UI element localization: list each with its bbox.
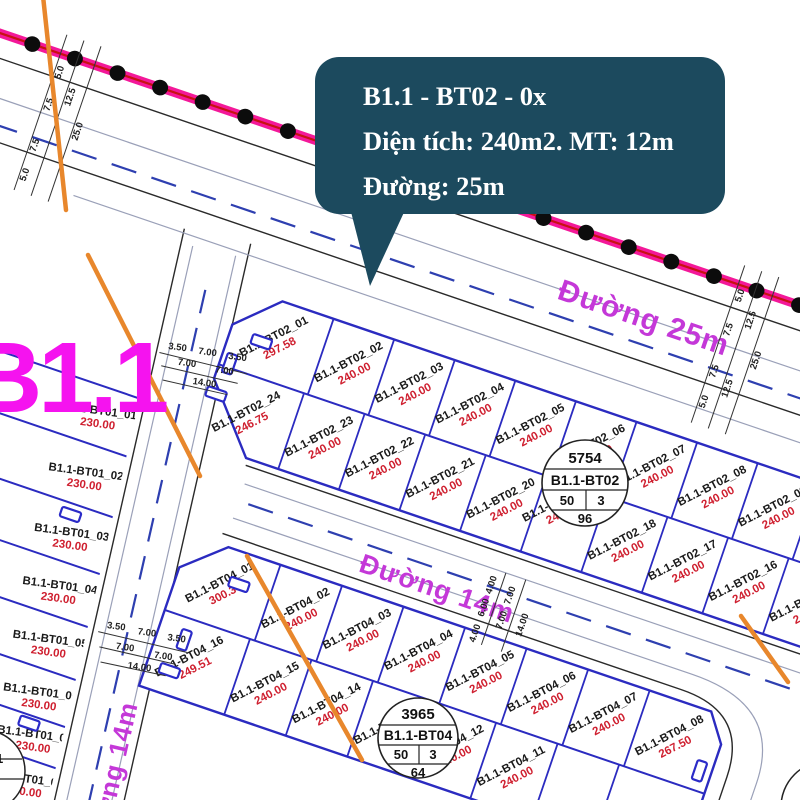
callout-tail	[350, 208, 406, 286]
seal-value: 50	[394, 747, 408, 762]
zone-title: B1.1	[0, 322, 167, 434]
info-callout[interactable]: B1.1 - BT02 - 0x Diện tích: 240m2. MT: 1…	[315, 57, 725, 214]
seal-code: B1.1-BT02	[551, 472, 620, 488]
dim-label: 7.5	[707, 363, 722, 380]
road-label-25m: Đường 25m	[554, 274, 734, 363]
dim-label: 7.5	[721, 321, 736, 338]
seal-partial-corner	[781, 761, 800, 800]
seal-value: 3	[429, 747, 436, 762]
plot-label[interactable]: B1.1-BT01_03230.00	[32, 522, 110, 557]
plot-label[interactable]: B1.1-BT01_06230.00	[1, 681, 79, 716]
seal-value: 01	[0, 751, 3, 766]
callout-road-width: Đường: 25m	[363, 164, 715, 209]
seal-value: 3	[597, 493, 604, 508]
dim-label: 5.0	[18, 167, 33, 183]
dim-label: 12.5	[719, 377, 736, 399]
seal-number: 3965	[401, 706, 434, 723]
seal-value: 50	[560, 493, 574, 508]
dim-label: 5.0	[697, 394, 712, 410]
seal-number: 5754	[568, 450, 602, 467]
seal-value: 64	[411, 765, 426, 780]
cadastral-map-screen: B1.1-BT01_01230.00 B1.1-BT01_02230.00 B1…	[0, 0, 800, 800]
plot-label[interactable]: B1.1-BT01_02230.00	[46, 461, 124, 496]
plot-label[interactable]: B1.1-BT01_05230.00	[10, 629, 89, 664]
seal-code: B1.1-BT04	[384, 727, 453, 743]
seal-value: 96	[578, 511, 592, 526]
plot-label[interactable]: B1.1-BT01_04230.00	[20, 575, 99, 610]
dim-label: 14.00	[513, 612, 531, 638]
dim-label: 12.5	[62, 86, 79, 108]
dim-label: 5.0	[53, 64, 68, 80]
dim-label: 25.0	[70, 121, 86, 142]
seal-bt02[interactable]: 5754 B1.1-BT02 50 3 96	[542, 440, 628, 526]
callout-area-frontage: Diện tích: 240m2. MT: 12m	[363, 119, 715, 164]
callout-title: B1.1 - BT02 - 0x	[363, 74, 715, 119]
dim-label: 25.0	[748, 350, 764, 371]
road-14m-vertical: Đường 14m	[12, 227, 254, 800]
